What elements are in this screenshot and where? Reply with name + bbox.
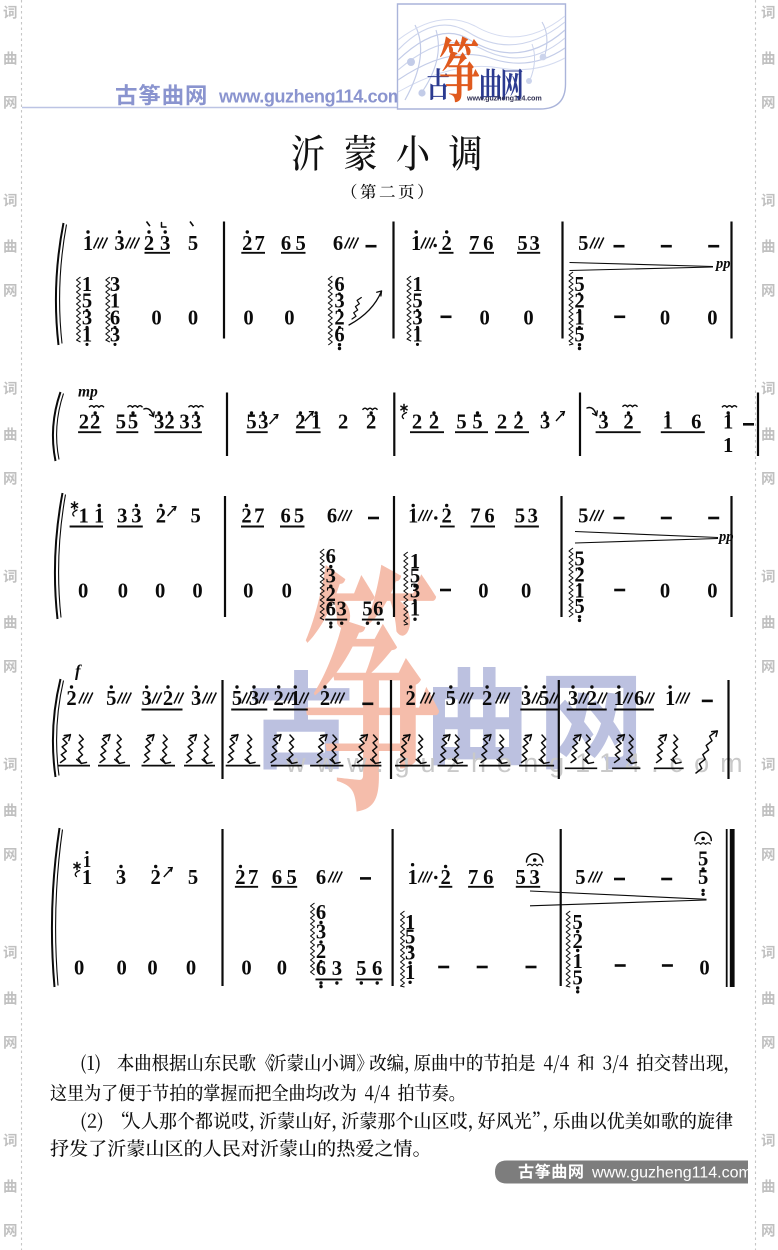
svg-text:5: 5 <box>246 412 256 434</box>
svg-text:1: 1 <box>94 506 104 528</box>
svg-text:7: 7 <box>470 506 480 528</box>
svg-text:0: 0 <box>707 308 717 330</box>
svg-text:1: 1 <box>411 233 421 255</box>
svg-text:3: 3 <box>191 688 201 710</box>
svg-text:0: 0 <box>192 581 202 603</box>
svg-text:www.guzheng114.com: www.guzheng114.com <box>218 87 404 107</box>
svg-text:f: f <box>75 662 82 681</box>
svg-text:0: 0 <box>151 308 161 330</box>
svg-text:5: 5 <box>190 506 200 528</box>
svg-text:5: 5 <box>356 958 366 980</box>
svg-text:pp: pp <box>714 256 731 272</box>
svg-text:2: 2 <box>366 412 376 434</box>
svg-text:6: 6 <box>326 599 336 621</box>
svg-text:6: 6 <box>484 506 494 528</box>
svg-text:2: 2 <box>79 412 89 434</box>
svg-text:0: 0 <box>147 958 157 980</box>
svg-text:5: 5 <box>517 233 527 255</box>
svg-text:6: 6 <box>272 867 282 889</box>
svg-text:5: 5 <box>188 867 198 889</box>
svg-text:3: 3 <box>530 233 540 255</box>
svg-text:2: 2 <box>442 506 452 528</box>
svg-text:5: 5 <box>578 233 588 255</box>
svg-text:2: 2 <box>235 867 245 889</box>
svg-text:1: 1 <box>407 867 417 889</box>
svg-text:2: 2 <box>497 412 507 434</box>
svg-text:6: 6 <box>483 233 493 255</box>
svg-text:3: 3 <box>131 506 141 528</box>
svg-text:0: 0 <box>523 308 533 330</box>
svg-text:5: 5 <box>116 412 126 434</box>
svg-text:5: 5 <box>575 867 585 889</box>
svg-text:5: 5 <box>106 688 116 710</box>
svg-text:7: 7 <box>255 233 265 255</box>
svg-text:2: 2 <box>412 412 422 434</box>
svg-text:3: 3 <box>249 688 259 710</box>
svg-text:5: 5 <box>446 688 456 710</box>
svg-text:2: 2 <box>440 867 450 889</box>
svg-text:0: 0 <box>521 581 531 603</box>
svg-text:1: 1 <box>79 506 89 528</box>
svg-text:0: 0 <box>186 958 196 980</box>
svg-text:6: 6 <box>316 867 326 889</box>
svg-text:5: 5 <box>472 412 482 434</box>
svg-text:5: 5 <box>578 506 588 528</box>
svg-text:0: 0 <box>277 958 287 980</box>
svg-text:3: 3 <box>598 412 608 434</box>
svg-text:0: 0 <box>479 308 489 330</box>
svg-text:6: 6 <box>634 688 644 710</box>
svg-text:1: 1 <box>723 435 733 457</box>
svg-text:3: 3 <box>530 867 540 889</box>
svg-text:6: 6 <box>316 958 326 980</box>
svg-text:0: 0 <box>707 581 717 603</box>
svg-text:5: 5 <box>573 967 583 989</box>
svg-text:6: 6 <box>691 412 701 434</box>
svg-text:1: 1 <box>405 962 415 984</box>
svg-text:0: 0 <box>241 958 251 980</box>
svg-text:5: 5 <box>287 867 297 889</box>
svg-text:0: 0 <box>116 958 126 980</box>
svg-text:2: 2 <box>163 688 173 710</box>
svg-text:1: 1 <box>82 867 92 889</box>
svg-text:2: 2 <box>338 412 348 434</box>
svg-text:1: 1 <box>408 506 418 528</box>
svg-text:6: 6 <box>483 867 493 889</box>
svg-text:2: 2 <box>242 233 252 255</box>
svg-text:2: 2 <box>623 412 633 434</box>
svg-text:1: 1 <box>723 412 733 434</box>
svg-text:3: 3 <box>116 867 126 889</box>
svg-text:0: 0 <box>74 958 84 980</box>
svg-text:7: 7 <box>254 506 264 528</box>
svg-text:5: 5 <box>574 596 584 618</box>
svg-text:1: 1 <box>290 688 300 710</box>
svg-text:1: 1 <box>663 412 673 434</box>
svg-text:0: 0 <box>118 581 128 603</box>
svg-text:5: 5 <box>698 867 708 889</box>
svg-text:3: 3 <box>160 233 170 255</box>
svg-text:0: 0 <box>243 308 253 330</box>
svg-text:3: 3 <box>142 688 152 710</box>
svg-text:5: 5 <box>232 688 242 710</box>
svg-text:1: 1 <box>665 688 675 710</box>
svg-text:2: 2 <box>241 506 251 528</box>
svg-text:2: 2 <box>90 412 100 434</box>
svg-text:1: 1 <box>410 599 420 621</box>
svg-text:2: 2 <box>151 867 161 889</box>
svg-text:0: 0 <box>188 308 198 330</box>
svg-text:www.guzheng114.com: www.guzheng114.com <box>285 748 754 778</box>
svg-text:3: 3 <box>521 688 531 710</box>
svg-text:0: 0 <box>284 308 294 330</box>
svg-text:6: 6 <box>372 958 382 980</box>
svg-text:pp: pp <box>717 529 734 545</box>
svg-text:0: 0 <box>243 581 253 603</box>
svg-text:3: 3 <box>114 233 124 255</box>
svg-text:6: 6 <box>333 233 343 255</box>
svg-text:5: 5 <box>188 233 198 255</box>
svg-text:3: 3 <box>528 506 538 528</box>
svg-text:3: 3 <box>540 412 550 434</box>
svg-text:2: 2 <box>429 412 439 434</box>
svg-text:3: 3 <box>332 958 342 980</box>
svg-text:0: 0 <box>155 581 165 603</box>
svg-text:0: 0 <box>78 581 88 603</box>
svg-text:6: 6 <box>373 599 383 621</box>
svg-text:2: 2 <box>513 412 523 434</box>
svg-text:0: 0 <box>478 581 488 603</box>
svg-text:7: 7 <box>248 867 258 889</box>
svg-text:3: 3 <box>568 688 578 710</box>
svg-text:1: 1 <box>614 688 624 710</box>
svg-text:1: 1 <box>311 412 321 434</box>
svg-text:2: 2 <box>482 688 492 710</box>
svg-text:5: 5 <box>516 867 526 889</box>
svg-text:2: 2 <box>587 688 597 710</box>
svg-text:6: 6 <box>281 233 291 255</box>
svg-text:5: 5 <box>294 506 304 528</box>
svg-text:2: 2 <box>144 233 154 255</box>
svg-text:2: 2 <box>156 506 166 528</box>
svg-text:2: 2 <box>295 412 305 434</box>
svg-text:5: 5 <box>362 599 372 621</box>
svg-text:0: 0 <box>282 581 292 603</box>
svg-text:5: 5 <box>295 233 305 255</box>
svg-text:3: 3 <box>117 506 127 528</box>
svg-text:5: 5 <box>515 506 525 528</box>
svg-text:mp: mp <box>78 384 98 401</box>
svg-text:5: 5 <box>128 412 138 434</box>
svg-text:6: 6 <box>327 506 337 528</box>
svg-text:5: 5 <box>539 688 549 710</box>
svg-text:2: 2 <box>164 412 174 434</box>
svg-text:2: 2 <box>406 688 416 710</box>
svg-text:5: 5 <box>456 412 466 434</box>
svg-text:www.guzheng114.com: www.guzheng114.com <box>591 1165 752 1182</box>
svg-text:www.guzheng114.com: www.guzheng114.com <box>466 94 542 103</box>
svg-text:2: 2 <box>274 688 284 710</box>
svg-text:2: 2 <box>442 233 452 255</box>
svg-text:3: 3 <box>337 599 347 621</box>
svg-text:3: 3 <box>154 412 164 434</box>
svg-text:7: 7 <box>469 233 479 255</box>
svg-text:1: 1 <box>83 233 93 255</box>
svg-text:3: 3 <box>191 412 201 434</box>
svg-text:6: 6 <box>280 506 290 528</box>
svg-text:2: 2 <box>66 688 76 710</box>
svg-text:0: 0 <box>699 958 709 980</box>
svg-text:7: 7 <box>468 867 478 889</box>
svg-text:0: 0 <box>660 581 670 603</box>
svg-text:0: 0 <box>660 308 670 330</box>
svg-text:3: 3 <box>179 412 189 434</box>
svg-text:2: 2 <box>320 688 330 710</box>
svg-text:3: 3 <box>258 412 268 434</box>
